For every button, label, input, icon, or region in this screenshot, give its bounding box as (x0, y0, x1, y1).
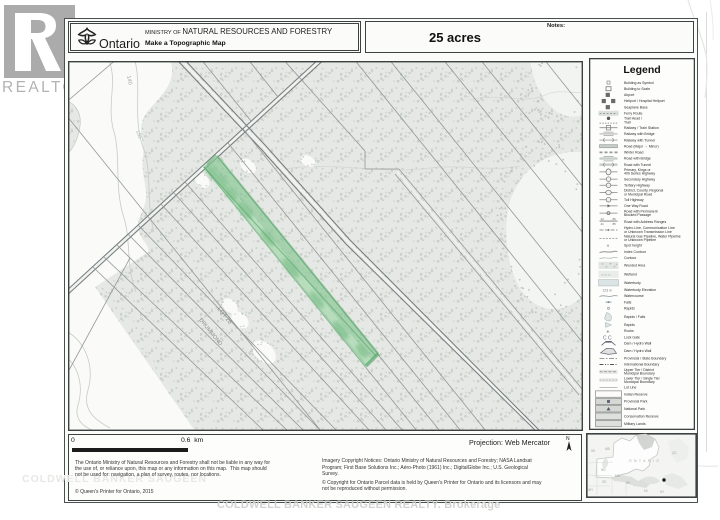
svg-text:Railway with Bridge: Railway with Bridge (624, 132, 655, 136)
svg-text:Watercourse: Watercourse (624, 294, 644, 298)
svg-text:ONTARIO: ONTARIO (629, 459, 661, 463)
svg-text:Dam / Hydro Wall: Dam / Hydro Wall (624, 349, 652, 353)
svg-text:Tertiary Highway: Tertiary Highway (624, 184, 650, 188)
svg-text:Road (Major → Minor): Road (Major → Minor) (624, 144, 659, 148)
svg-text:Military Lands: Military Lands (624, 422, 646, 426)
svg-text:Conservation Reserve: Conservation Reserve (624, 414, 659, 418)
svg-text:Building as Symbol: Building as Symbol (624, 81, 654, 85)
svg-text:Building to Scale: Building to Scale (624, 87, 650, 91)
svg-text:Municipal Boundary: Municipal Boundary (624, 380, 655, 384)
svg-text:Seaplane Base: Seaplane Base (624, 105, 648, 109)
svg-text:Lock Gate: Lock Gate (624, 335, 640, 339)
svg-text:Provincial / State Boundary: Provincial / State Boundary (624, 357, 666, 361)
svg-text:National Park: National Park (624, 407, 645, 411)
svg-text:Road with Tunnel: Road with Tunnel (624, 163, 651, 167)
svg-text:SD: SD (602, 480, 607, 484)
svg-text:Ferry Route: Ferry Route (624, 112, 643, 116)
svg-text:×: × (607, 244, 610, 250)
svg-text:Spot height: Spot height (624, 244, 642, 248)
svg-text:Rapids: Rapids (624, 323, 635, 327)
svg-text:Wooded Area: Wooded Area (624, 264, 645, 268)
svg-text:Dam / Hydro Wall: Dam / Hydro Wall (624, 342, 652, 346)
svg-text:N: N (566, 436, 570, 442)
svg-text:400 Series Highway: 400 Series Highway (624, 172, 655, 176)
svg-text:MB: MB (605, 447, 610, 451)
svg-text:Waterbody Elevation: Waterbody Elevation (624, 288, 656, 292)
svg-text:ND: ND (601, 468, 606, 472)
svg-text:Winter Road: Winter Road (624, 151, 644, 155)
svg-text:∗: ∗ (606, 329, 610, 334)
svg-text:Rapids / Falls: Rapids / Falls (624, 315, 645, 319)
svg-text:Trail: Trail (624, 120, 631, 124)
svg-text:C C: C C (603, 335, 612, 341)
svg-text:86: 86 (613, 217, 617, 221)
svg-text:Waterbody: Waterbody (624, 281, 641, 285)
svg-text:or Municipal Road: or Municipal Road (624, 192, 652, 196)
svg-text:Provincial Park: Provincial Park (624, 400, 648, 404)
svg-text:Railway with Tunnel: Railway with Tunnel (624, 138, 655, 142)
svg-text:Index Contour: Index Contour (624, 250, 647, 254)
svg-text:Wetland: Wetland (624, 273, 637, 277)
svg-text:Municipal Boundary: Municipal Boundary (624, 372, 655, 376)
svg-text:Contour: Contour (624, 256, 637, 260)
svg-text:or Unknown Transmission Line: or Unknown Transmission Line (624, 230, 672, 234)
svg-text:Legend: Legend (623, 64, 660, 76)
svg-text:Road with Address Ranges: Road with Address Ranges (624, 220, 666, 224)
svg-text:123 m: 123 m (603, 288, 613, 292)
svg-text:42: 42 (601, 217, 605, 221)
svg-text:QC: QC (672, 451, 677, 455)
svg-text:One Way Road: One Way Road (624, 204, 648, 208)
svg-text:or Unknown Pipeline: or Unknown Pipeline (624, 238, 656, 242)
svg-text:≈ ≈ ≈: ≈ ≈ ≈ (602, 272, 612, 277)
svg-text:WI: WI (626, 481, 630, 485)
svg-text:Blocked Passage: Blocked Passage (624, 213, 651, 217)
svg-text:WY: WY (588, 488, 594, 492)
svg-text:Falls: Falls (624, 300, 632, 304)
svg-text:41: 41 (601, 222, 605, 226)
svg-text:Airport: Airport (624, 93, 634, 97)
svg-text:85: 85 (613, 222, 617, 226)
svg-text:Toll Highway: Toll Highway (624, 198, 644, 202)
svg-text:Road with Bridge: Road with Bridge (624, 157, 651, 161)
svg-text:Heliport / Hospital Heliport: Heliport / Hospital Heliport (624, 99, 665, 103)
svg-text:MN: MN (615, 474, 621, 478)
svg-text:Secondary Highway: Secondary Highway (624, 177, 655, 181)
svg-text:MI: MI (644, 489, 648, 493)
svg-text:International Boundary: International Boundary (624, 363, 659, 367)
svg-text:Railway / Train Station: Railway / Train Station (624, 126, 659, 130)
svg-text:Lot Line: Lot Line (624, 386, 637, 390)
svg-text:Indian Reserve: Indian Reserve (624, 392, 648, 396)
svg-text:Rapids: Rapids (624, 307, 635, 311)
svg-text:Rocks: Rocks (624, 329, 634, 333)
